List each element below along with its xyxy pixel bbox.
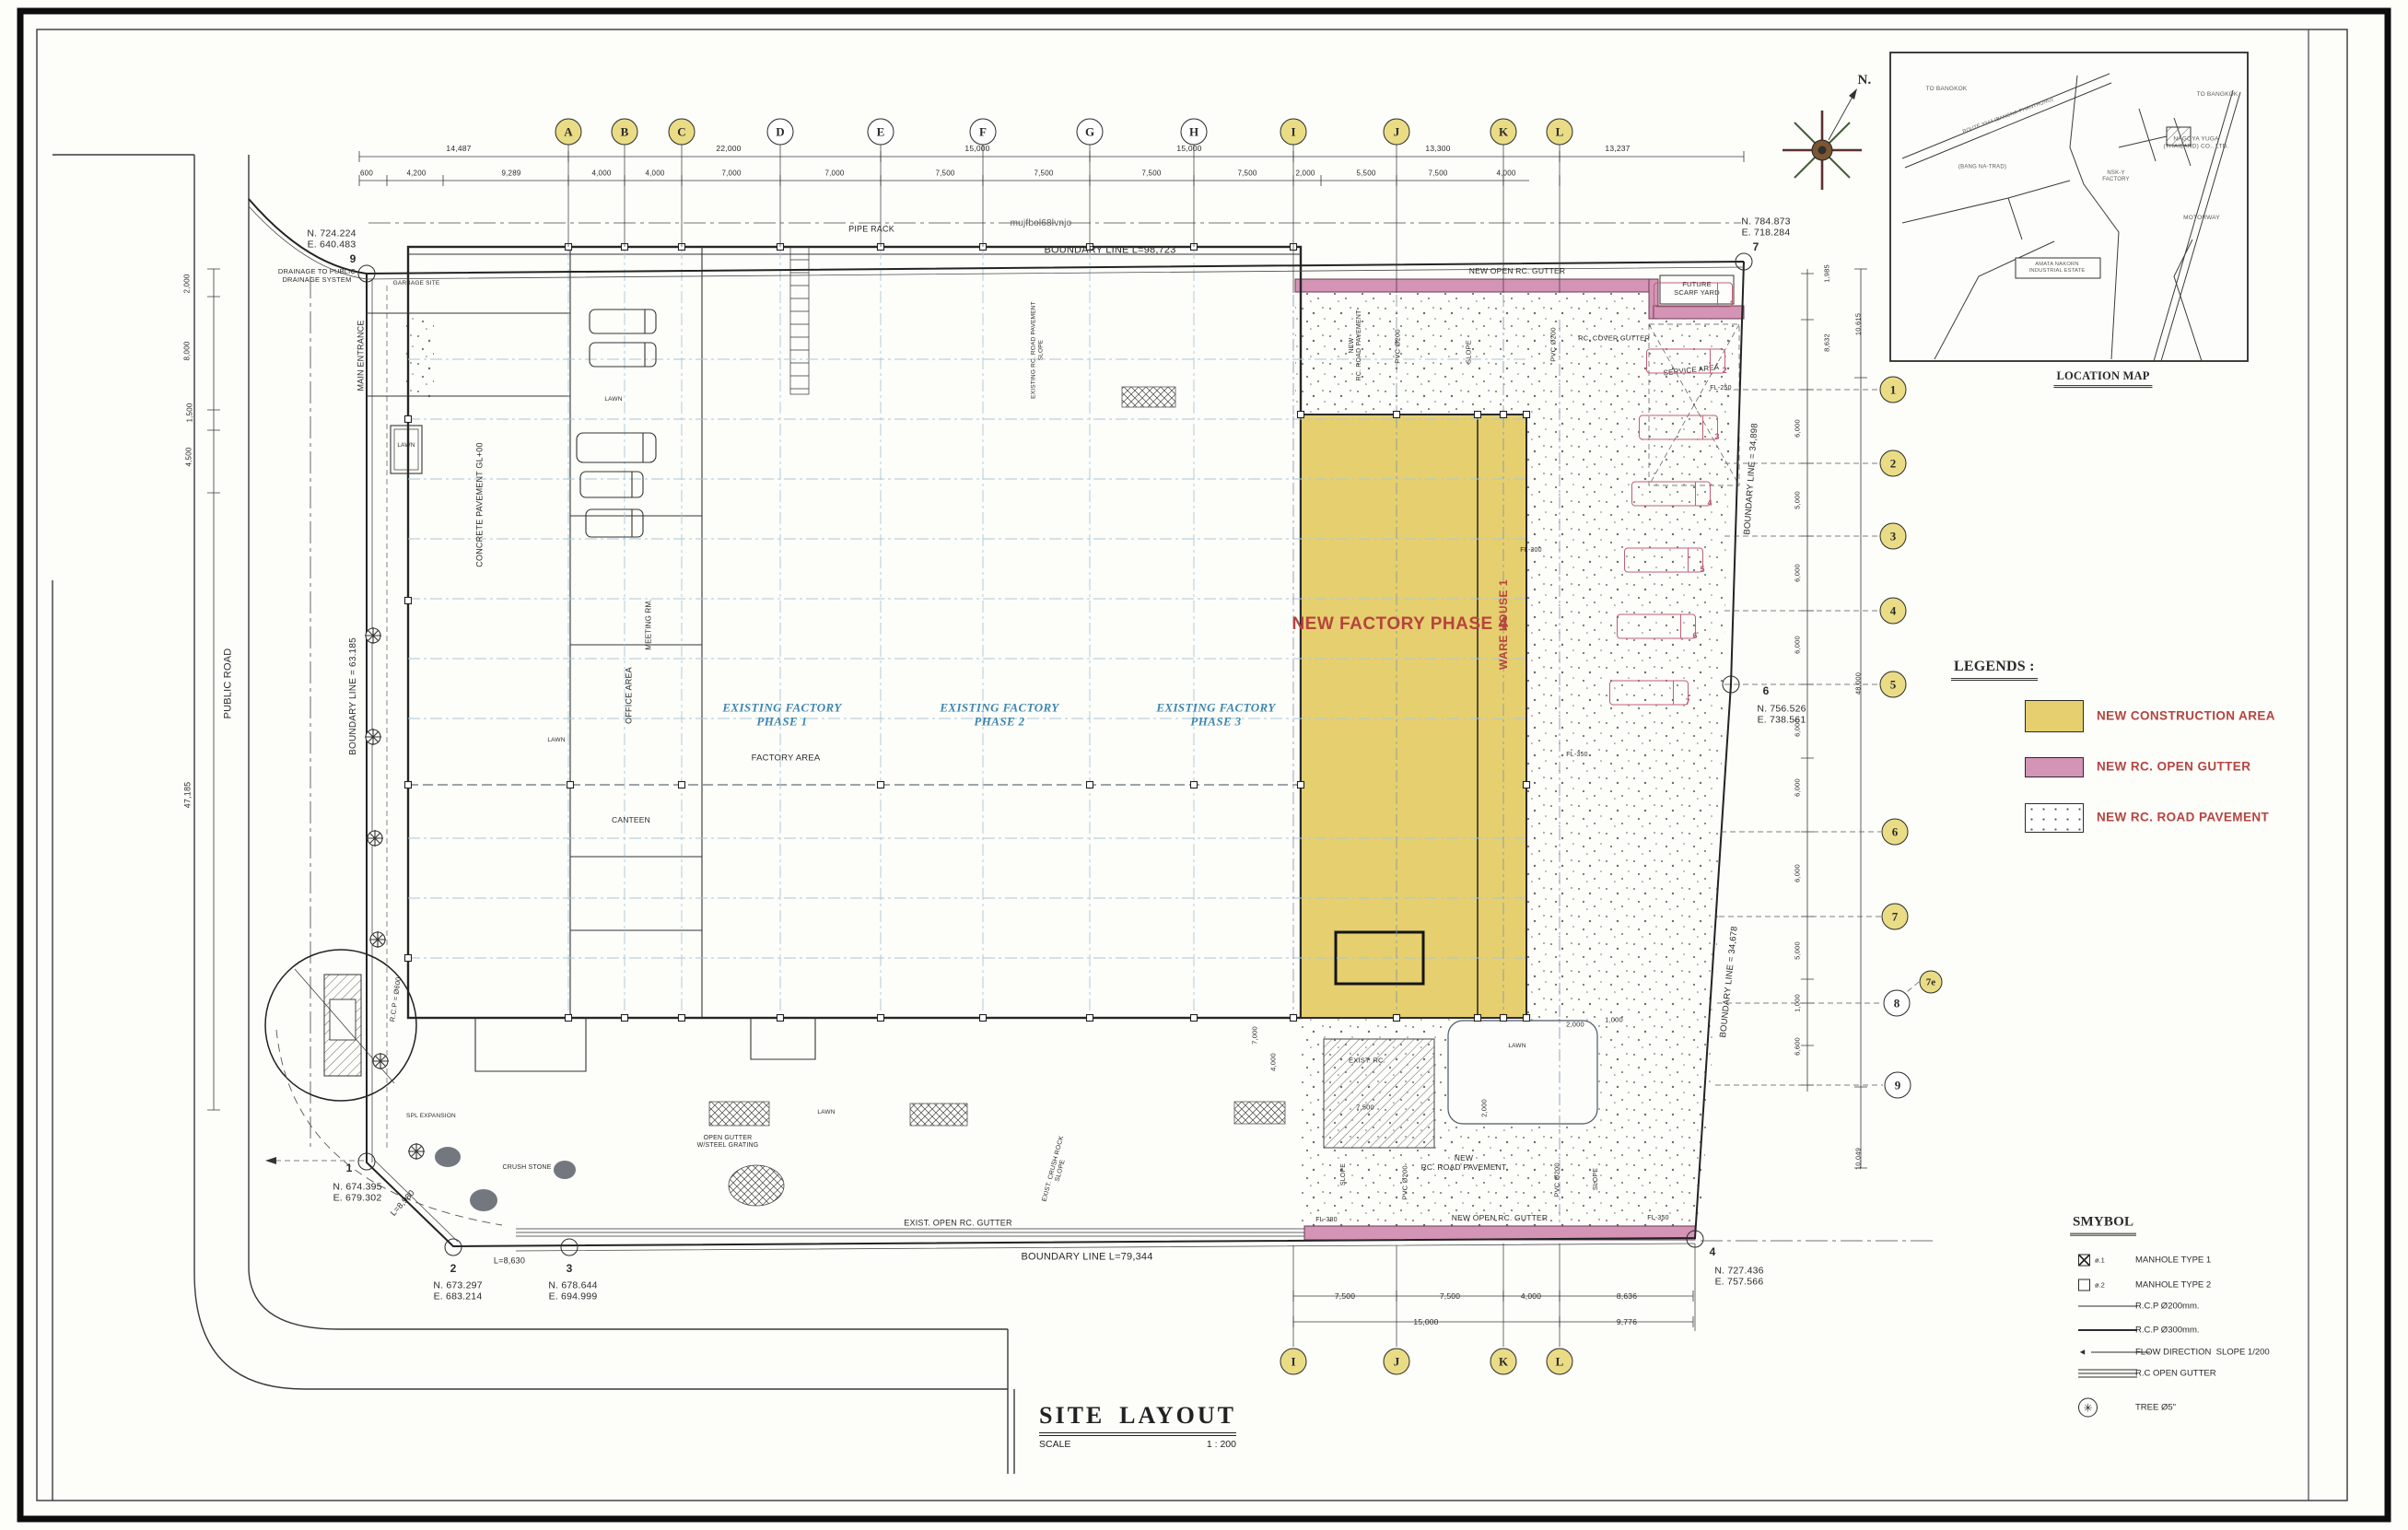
survey-point-marker [445,1239,462,1256]
dim: 15,000 [964,144,989,153]
point-3-label: 3 [567,1262,573,1275]
dim: 2,000 [1295,169,1315,177]
slope-label: SLOPE [1340,1163,1348,1185]
survey-point-marker [1723,676,1740,694]
gutter-icon [2078,1370,2137,1378]
dim: 6,000 [1794,564,1803,582]
point-9-label: 9 [350,252,357,265]
point-1-coords: N. 674.395 E. 679.302 [333,1182,381,1205]
grid-marker-F: F [970,119,997,146]
dim: 22,000 [716,144,741,153]
symbol-label: MANHOLE TYPE 1 [2135,1256,2211,1266]
map-label: AMATA NAKORN INDUSTRIAL ESTATE [2029,262,2086,274]
public-road-label: PUBLIC ROAD [223,648,235,719]
office-area-label: OFFICE AREA [625,667,635,724]
dim: 7,000 [824,169,844,177]
grid-marker-C: C [669,119,696,146]
artifact-text: mujfbol68lvnjo [1011,218,1072,229]
gutter-bottom-label: NEW OPEN RC. GUTTER [1452,1213,1548,1222]
phase-1-label: EXISTING FACTORY PHASE 1 [722,701,841,730]
symbol-label: R.C.P Ø300mm. [2135,1326,2200,1336]
point-7-coords: N. 784.873 E. 718.284 [1741,216,1790,239]
boundary-right-1-label: BOUNDARY LINE = 34,898 [1742,423,1760,535]
grid-marker-B: B [612,119,638,146]
grid-marker-5: 5 [1880,672,1907,698]
exist-gutter-label: EXIST. OPEN RC. GUTTER [904,1219,1011,1229]
warehouse-1-label: WARE HOUSE 1 [1497,579,1510,670]
new-pavement-bottom-label: NEW RC. ROAD PAVEMENT [1421,1153,1507,1172]
symbols-title: SMYBOL [2070,1215,2136,1236]
grid-marker-H: H [1181,119,1208,146]
boundary-top-label: BOUNDARY LINE L=98,723 [1044,245,1175,257]
crush-rock-label: EXIST. CRUSH ROCK SLOPE [1041,1135,1073,1205]
dim: 6,000 [1794,864,1803,882]
grid-marker-L: L [1547,1349,1573,1375]
dim: 7,000 [1252,1026,1260,1045]
fl-label: FL-350 [1566,752,1587,759]
slope-label: SLOPE [1466,340,1474,364]
dim: 7,500 [1440,1291,1460,1301]
dim: 8,636 [1617,1291,1637,1301]
rc-cover-gutter-label: RC. COVER GUTTER [1578,335,1650,344]
symbol-label: FLOW DIRECTION SLOPE 1/200 [2135,1348,2270,1358]
point-2-label: 2 [450,1262,457,1275]
symbol-label: MANHOLE TYPE 2 [2135,1280,2211,1291]
truck-stall-number: 7 [1685,697,1689,707]
point-4-label: 4 [1710,1245,1716,1258]
lawn-label: LAWN [817,1109,835,1116]
fl-label: FL-350 [1647,1215,1668,1222]
point-9-coords: N. 724.224 E. 640.483 [307,228,356,251]
truck-stall-number: 1 [1729,299,1734,309]
dim: 7,500 [1335,1291,1355,1301]
dim: 6,000 [1794,718,1803,737]
dim: 15,000 [1176,144,1201,153]
dim: 1,985 [1824,264,1832,283]
dim: 4,000 [1496,169,1515,177]
dim: L=8,630 [494,1256,525,1267]
dim: 5,000 [1794,941,1803,960]
line300-icon [2078,1329,2137,1331]
point-6-coords: N. 756.526 E. 738.561 [1757,704,1806,727]
grid-marker-J: J [1384,119,1410,146]
dim: 4,000 [1521,1291,1541,1301]
dim: 14,487 [446,144,471,153]
legends-title: LEGENDS : [1951,659,2038,681]
lawn-label: LAWN [604,396,622,403]
truck-stall-number: 4 [1707,498,1712,508]
dim: 15,000 [1413,1317,1438,1326]
truck-parking-stall [1654,283,1733,308]
dim: 1,000 [1605,1017,1623,1025]
grid-marker-L: L [1547,119,1573,146]
spl-label: SPL EXPANSION [406,1113,456,1120]
pvc-label: PVC Ø200 [1395,329,1403,363]
map-label: TO BANGKOK [1926,86,1968,93]
dim: 7,500 [935,169,954,177]
point-7-label: 7 [1753,240,1759,253]
dim: 9,289 [501,169,520,177]
symbol-label: TREE Ø5" [2135,1403,2176,1413]
truck-parking-stall [1646,349,1725,374]
survey-point-marker [358,1153,376,1171]
dim: 4,000 [591,169,611,177]
dim: 7,500 [1141,169,1161,177]
fl-label: FL-380 [1315,1217,1337,1224]
dim: 2,000 [1481,1099,1490,1117]
scale-value: 1 : 200 [1207,1439,1236,1450]
dim: 6,000 [1794,419,1803,438]
sheet-title-word1: SITE [1039,1402,1105,1430]
dim: 2,000 [182,274,191,293]
dim: 4,000 [645,169,664,177]
dim: 8,632 [1824,333,1832,352]
grid-marker-6: 6 [1882,819,1909,846]
sheet-scale: SCALE 1 : 200 [1039,1439,1236,1450]
truck-parking-stall [1609,681,1689,706]
map-label: ROUTE 3344 (BANGNA-PHANTHONG) [1962,97,2054,135]
factory-area-label: FACTORY AREA [752,753,821,763]
grid-marker-I: I [1280,119,1307,146]
boundary-right-2-label: BOUNDARY LINE = 34,678 [1718,926,1740,1038]
dim: 47,185 [183,782,193,809]
dim: 5,500 [1356,169,1375,177]
map-label: (BANG NA-TRAD) [1958,164,2006,170]
survey-point-marker [561,1239,579,1256]
point-1-label: 1 [346,1162,353,1174]
lawn-label: LAWN [397,442,415,450]
dim: 13,300 [1425,144,1450,153]
grid-marker-2: 2 [1880,450,1907,477]
exist-pavement-label: EXISTING RC. ROAD PAVEMENT SLOPE [1030,301,1044,399]
pvc-label: PVC Ø200 [1550,327,1559,361]
grid-marker-I: I [1280,1349,1307,1375]
grid-marker-1: 1 [1880,377,1907,403]
north-label: N. [1858,73,1872,89]
dim: 1,500 [185,403,193,422]
legend-label: NEW RC. ROAD PAVEMENT [2097,811,2269,824]
dim: 6,600 [1794,1037,1803,1056]
legend-swatch-dotted [2025,803,2084,833]
truck-parking-stall [1639,415,1718,440]
grid-marker-E: E [868,119,894,146]
point-2-coords: N. 673.297 E. 683.214 [433,1280,482,1303]
truck-parking-stall [1631,482,1711,507]
survey-point-marker [1736,253,1753,271]
point-6-label: 6 [1763,684,1770,697]
grid-marker-7e: 7e [1920,971,1943,994]
title-block: SITE LAYOUT SCALE 1 : 200 [1039,1402,1236,1450]
dim: 7,500 [1034,169,1053,177]
grid-marker-7: 7 [1882,904,1909,930]
drawing-sheet: mujfbol68lvnjoBOUNDARY LINE L=98,723PIPE… [0,0,2408,1530]
pvc-label: PVC Ø200 [1402,1165,1410,1199]
slope-label: SLOPE [1593,1168,1600,1190]
legend-swatch-yellow [2025,700,2084,732]
grid-marker-K: K [1490,119,1517,146]
new-factory-phase-4-label: NEW FACTORY PHASE 4 [1292,614,1508,635]
dim: 48,000 [1855,672,1864,695]
dim: 4,200 [406,169,426,177]
grid-marker-4: 4 [1880,598,1907,625]
grid-marker-8: 8 [1884,990,1911,1017]
symbol-label: R.C.P Ø200mm. [2135,1302,2200,1312]
sheet-title: SITE LAYOUT [1039,1402,1236,1436]
manhole2-icon: ø.2 [2078,1279,2105,1291]
lawn-label: LAWN [1508,1043,1525,1050]
grid-marker-G: G [1077,119,1104,146]
scale-label: SCALE [1039,1439,1070,1450]
dim: 8,000 [182,341,191,360]
boundary-left-label: BOUNDARY LINE = 63.185 [348,637,359,755]
legend-swatch-pink [2025,757,2084,777]
grid-marker-A: A [555,119,582,146]
gutter-top-label: NEW OPEN RC. GUTTER [1469,266,1565,275]
dim: 7,000 [721,169,741,177]
dim: 6,000 [1794,778,1803,797]
drainage-note: DRAINAGE TO PUBLIC DRAINAGE SYSTEM [278,268,356,285]
dim: 5,000 [1794,491,1803,509]
new-pavement-top-label: NEW RC. ROAD PAVEMENT [1349,310,1364,380]
grid-marker-K: K [1490,1349,1517,1375]
dim: 2,000 [1566,1022,1584,1030]
truck-parking-stall [1617,614,1696,639]
phase-3-label: EXISTING FACTORY PHASE 3 [1156,701,1275,730]
line200-icon [2078,1306,2137,1307]
legend-label: NEW CONSTRUCTION AREA [2097,708,2275,722]
truck-stall-number: 3 [1714,432,1719,441]
dim: 10,615 [1855,313,1864,335]
pvc-label: PVC Ø200 [1554,1162,1562,1197]
legend-label: NEW RC. OPEN GUTTER [2097,760,2250,774]
rcp600-label: R.C.P = Ø600 [389,976,403,1022]
boundary-bottom-label: BOUNDARY LINE L=79,344 [1021,1252,1152,1264]
map-label: NSK-Y FACTORY [2102,170,2130,183]
exist-rc-label: EXIST. RC. [1349,1057,1385,1066]
dim: 600 [360,169,373,177]
fl-label: FL-250 [1710,385,1731,392]
map-label: MOTORWAY [2183,215,2220,222]
point-4-coords: N. 727.436 E. 757.566 [1714,1266,1763,1289]
annotation-layer: mujfbol68lvnjoBOUNDARY LINE L=98,723PIPE… [0,0,2408,1530]
crush-stone-label: CRUSH STONE [502,1164,551,1172]
dim: 1,000 [1794,994,1803,1012]
location-map-title: LOCATION MAP [2053,369,2152,388]
grid-marker-J: J [1384,1349,1410,1375]
sheet-title-word2: LAYOUT [1119,1402,1236,1430]
pipe-rack-label: PIPE RACK [848,225,894,235]
tree-icon: ✳ [2078,1398,2098,1418]
dim: 6,000 [1794,636,1803,654]
grid-marker-D: D [767,119,794,146]
survey-point-marker [358,265,376,283]
map-label: TO BANGKOK [2197,91,2239,99]
dim: 13,237 [1605,144,1630,153]
manhole1-icon: ø.1 [2078,1255,2105,1267]
grid-marker-9: 9 [1885,1072,1911,1099]
canteen-label: CANTEEN [612,815,650,824]
dim: 4,000 [1270,1053,1279,1071]
meeting-rm-label: MEETING RM. [644,599,652,650]
grid-marker-3: 3 [1880,523,1907,550]
dim: 7,500 [1237,169,1257,177]
truck-stall-number: 5 [1700,565,1704,574]
truck-stall-number: 6 [1692,631,1697,640]
dim: 4,500 [184,447,193,466]
lawn-label: LAWN [547,737,565,744]
point-3-coords: N. 678.644 E. 694.999 [548,1280,597,1303]
truck-parking-stall [1624,548,1703,573]
dim: 10,049 [1855,1148,1864,1170]
survey-point-marker [1687,1231,1704,1248]
dim: 9,776 [1617,1317,1637,1326]
dim: 7,500 [1356,1104,1374,1113]
map-label: NAGOYA YUGA (THAILAND) CO., LTD. [2163,135,2228,149]
garbage-label: GARBAGE SITE [393,280,440,287]
dim: 7,500 [1428,169,1447,177]
dim: L=8,980 [389,1188,417,1219]
fl-label: FL-300 [1520,547,1541,555]
phase-2-label: EXISTING FACTORY PHASE 2 [940,701,1058,730]
symbol-label: R.C OPEN GUTTER [2135,1369,2216,1379]
main-entrance-label: MAIN ENTRANCE [357,320,367,391]
concrete-pavement-label: CONCRETE PAVEMENT GL+00 [475,442,485,566]
open-gutter-grating-label: OPEN GUTTER W/STEEL GRATING [697,1135,759,1150]
truck-stall-number: 2 [1722,366,1726,375]
